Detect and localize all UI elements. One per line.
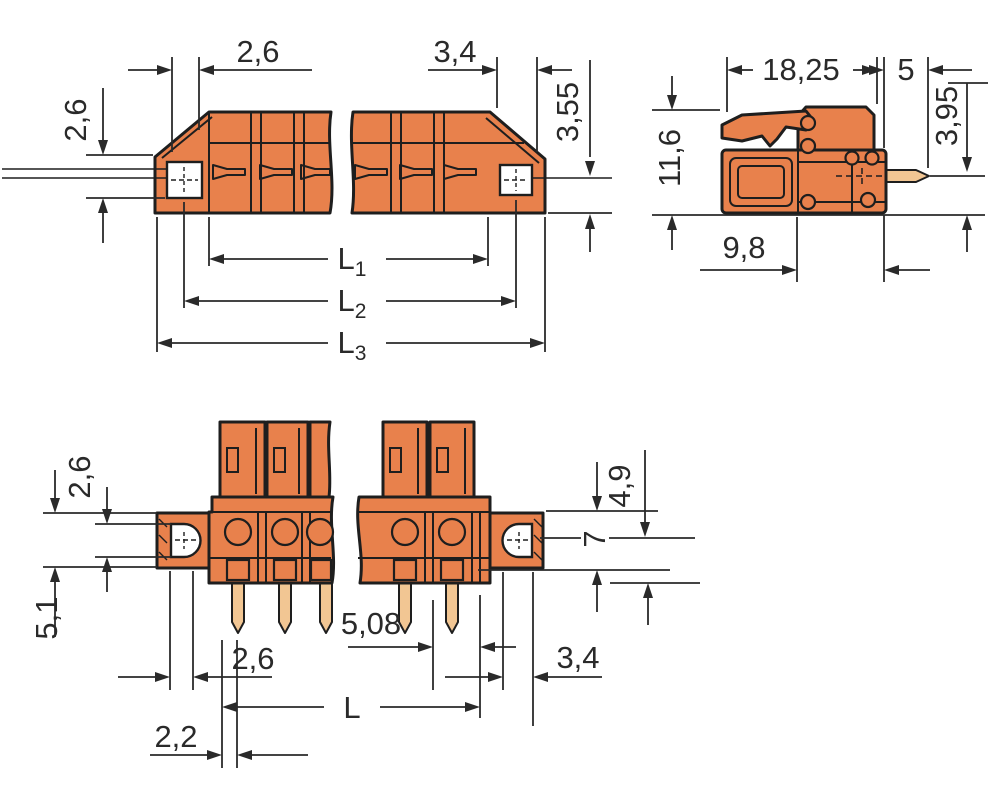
dim-side-width: 18,25: [762, 52, 840, 87]
dim-front-top-right: 3,4: [433, 34, 476, 69]
dim-l2: L2: [338, 283, 367, 323]
dim-bottom-pin-offset: 2,2: [154, 719, 197, 754]
dim-front-side-right: 3,55: [550, 82, 585, 142]
dim-side-depth: 9,8: [722, 230, 765, 265]
dim-bottom-pitch: 5,08: [341, 606, 401, 641]
dim-bottom-length: L: [343, 690, 360, 725]
dim-side-pin-drop: 3,95: [929, 86, 964, 146]
side-view-body: [722, 107, 929, 213]
dim-bottom-right-center: 7: [577, 530, 612, 547]
dim-bottom-right-top: 4,9: [602, 464, 637, 507]
bottom-view-body: [157, 422, 543, 633]
dim-bottom-right-offset: 3,4: [556, 640, 599, 675]
dim-bottom-left-offset: 2,6: [231, 641, 274, 676]
bottom-view: 2,6 5,1 4,9 7: [29, 422, 700, 768]
technical-drawing-canvas: 2,6 3,4 2,6 3,55: [0, 0, 1000, 796]
dim-front-top-left: 2,6: [236, 34, 279, 69]
dim-l3: L3: [338, 325, 367, 365]
front-view-dimensions: 2,6 3,4 2,6 3,55: [58, 34, 612, 498]
dim-bottom-left-top: 2,6: [62, 455, 97, 498]
side-view: 18,25 5 11,6 3,95: [652, 52, 988, 282]
dim-front-side-left: 2,6: [58, 98, 93, 141]
dim-l1: L1: [338, 241, 367, 281]
dim-side-pin: 5: [897, 52, 914, 87]
dim-side-height: 11,6: [652, 129, 687, 187]
dim-bottom-left-bottom: 5,1: [29, 596, 64, 639]
connector-drawing: 2,6 3,4 2,6 3,55: [0, 0, 1000, 796]
